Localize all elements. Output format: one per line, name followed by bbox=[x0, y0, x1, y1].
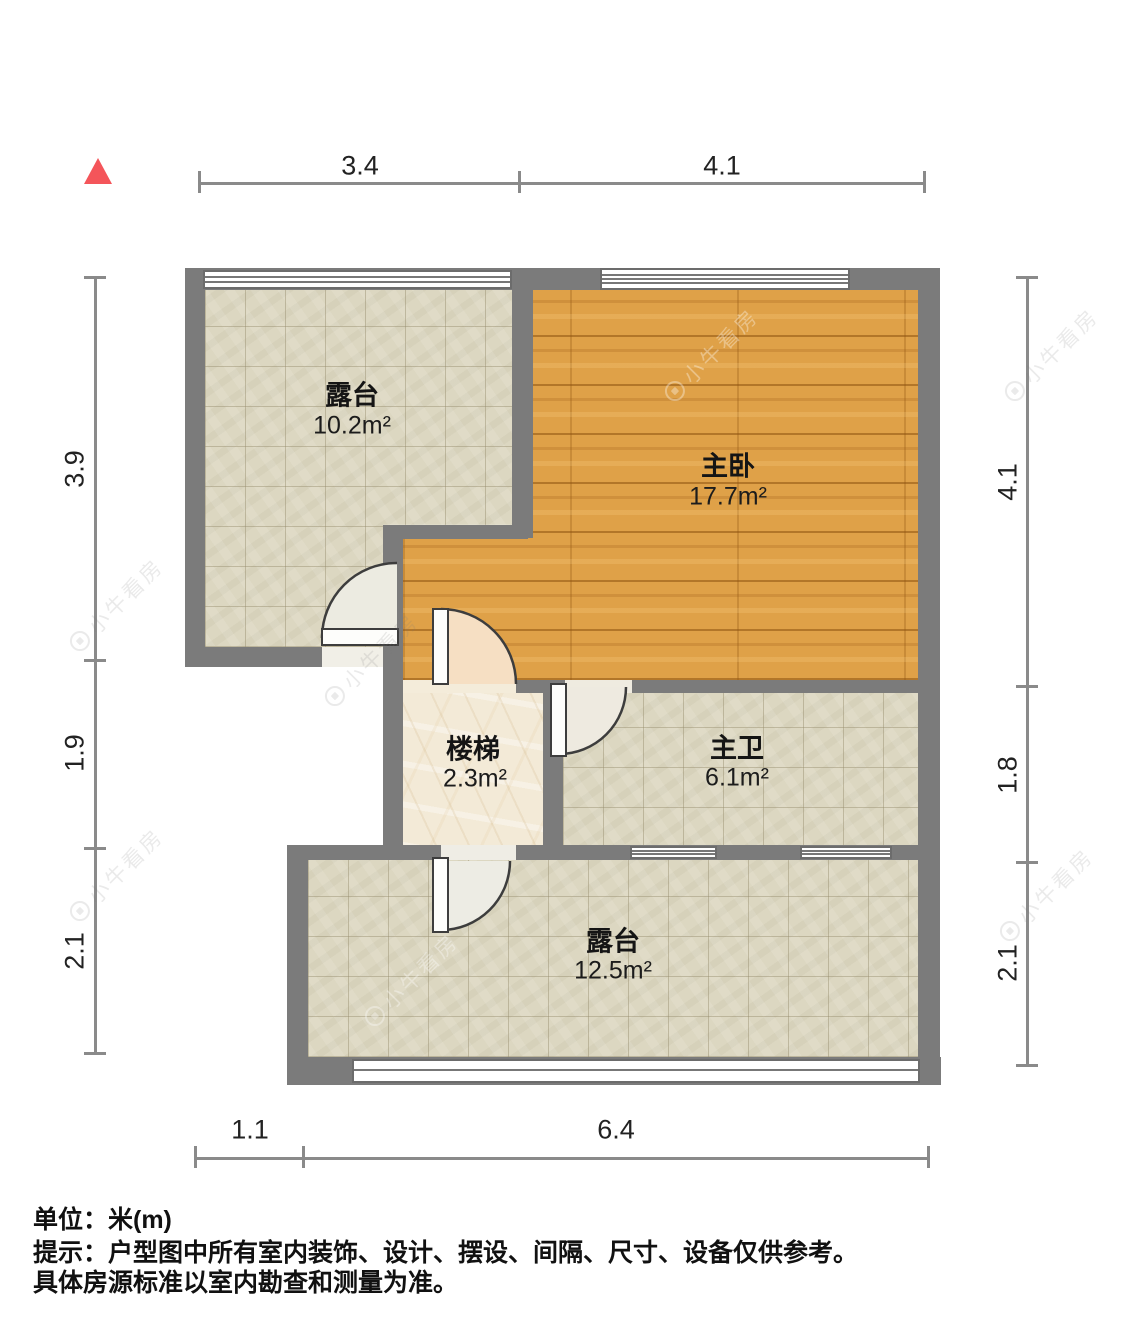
dim-tick bbox=[198, 171, 201, 193]
floor-plan-page: 露台 10.2m² 主卧 17.7m² 楼梯 2.3m² 主卫 6.1m² 露台… bbox=[0, 0, 1125, 1342]
dim-tick bbox=[84, 276, 106, 279]
watermark-logo-icon bbox=[996, 917, 1024, 945]
threshold-bathroom bbox=[565, 680, 632, 693]
dim-line-left bbox=[94, 278, 97, 1054]
dim-left-1: 3.9 bbox=[60, 450, 91, 488]
dim-right-3: 2.1 bbox=[993, 944, 1024, 982]
dim-tick bbox=[518, 171, 521, 193]
window-terrace-top bbox=[203, 270, 512, 289]
watermark: 小牛看房 bbox=[62, 551, 169, 658]
dim-tick bbox=[84, 659, 106, 662]
railing-terrace-bottom bbox=[352, 1059, 920, 1083]
north-arrow-icon bbox=[84, 158, 112, 184]
window-bathroom-2 bbox=[800, 846, 892, 859]
dim-tick bbox=[84, 847, 106, 850]
window-bedroom bbox=[600, 268, 850, 290]
dim-tick bbox=[1016, 1064, 1038, 1067]
dim-bottom-1: 1.1 bbox=[231, 1115, 269, 1146]
dim-tick bbox=[302, 1146, 305, 1168]
dim-line-right bbox=[1026, 278, 1029, 1066]
wall-stairs-west bbox=[383, 539, 403, 860]
dim-right-1: 4.1 bbox=[993, 463, 1024, 501]
room-area-terrace-bottom: 12.5m² bbox=[574, 957, 652, 986]
room-label-stairs: 楼梯 bbox=[446, 728, 500, 767]
room-label-terrace-bottom: 露台 bbox=[586, 920, 640, 959]
threshold-terrace-bottom bbox=[441, 845, 516, 860]
dim-top-1: 3.4 bbox=[341, 151, 379, 182]
wall-left-outer bbox=[185, 290, 205, 667]
dim-top-2: 4.1 bbox=[703, 151, 741, 182]
dim-tick bbox=[1016, 861, 1038, 864]
threshold-terrace-door bbox=[322, 647, 383, 667]
dim-left-3: 2.1 bbox=[60, 932, 91, 970]
dim-line-bottom bbox=[196, 1157, 929, 1160]
tip-note-line2: 具体房源标准以室内勘查和测量为准。 bbox=[33, 1263, 458, 1299]
room-label-terrace-top: 露台 bbox=[325, 374, 379, 413]
dim-tick bbox=[84, 1052, 106, 1055]
room-area-stairs: 2.3m² bbox=[443, 765, 507, 794]
dim-tick bbox=[1016, 685, 1038, 688]
dim-tick bbox=[923, 171, 926, 193]
watermark-logo-icon bbox=[321, 682, 349, 710]
wall-bedroom-south-2 bbox=[632, 680, 918, 693]
wall-right-outer bbox=[918, 268, 940, 1085]
room-area-master-bedroom: 17.7m² bbox=[689, 483, 767, 512]
wall-terrace-top-south bbox=[185, 647, 322, 667]
threshold-stairs-bedroom bbox=[403, 680, 516, 693]
dim-tick bbox=[927, 1146, 930, 1168]
room-label-master-bedroom: 主卧 bbox=[701, 445, 755, 484]
room-area-master-bath: 6.1m² bbox=[705, 764, 769, 793]
watermark: 小牛看房 bbox=[997, 301, 1104, 408]
watermark-logo-icon bbox=[66, 627, 94, 655]
dim-tick bbox=[1016, 276, 1038, 279]
watermark: 小牛看房 bbox=[992, 841, 1099, 948]
dim-left-2: 1.9 bbox=[60, 734, 91, 772]
dim-tick bbox=[194, 1146, 197, 1168]
room-label-master-bath: 主卫 bbox=[710, 727, 764, 766]
dim-right-2: 1.8 bbox=[993, 756, 1024, 794]
dim-bottom-2: 6.4 bbox=[597, 1115, 635, 1146]
wall-step bbox=[383, 525, 528, 539]
unit-note: 单位：米(m) bbox=[33, 1200, 172, 1236]
wall-terrace-bottom-west bbox=[287, 860, 308, 1085]
wall-stairs-east bbox=[543, 680, 563, 860]
watermark-logo-icon bbox=[66, 897, 94, 925]
wall-terrace-bedroom bbox=[512, 288, 533, 538]
window-bathroom-1 bbox=[630, 846, 717, 859]
watermark: 小牛看房 bbox=[62, 821, 169, 928]
dim-line-top bbox=[200, 182, 925, 185]
room-area-terrace-top: 10.2m² bbox=[313, 412, 391, 441]
watermark-logo-icon bbox=[1001, 377, 1029, 405]
